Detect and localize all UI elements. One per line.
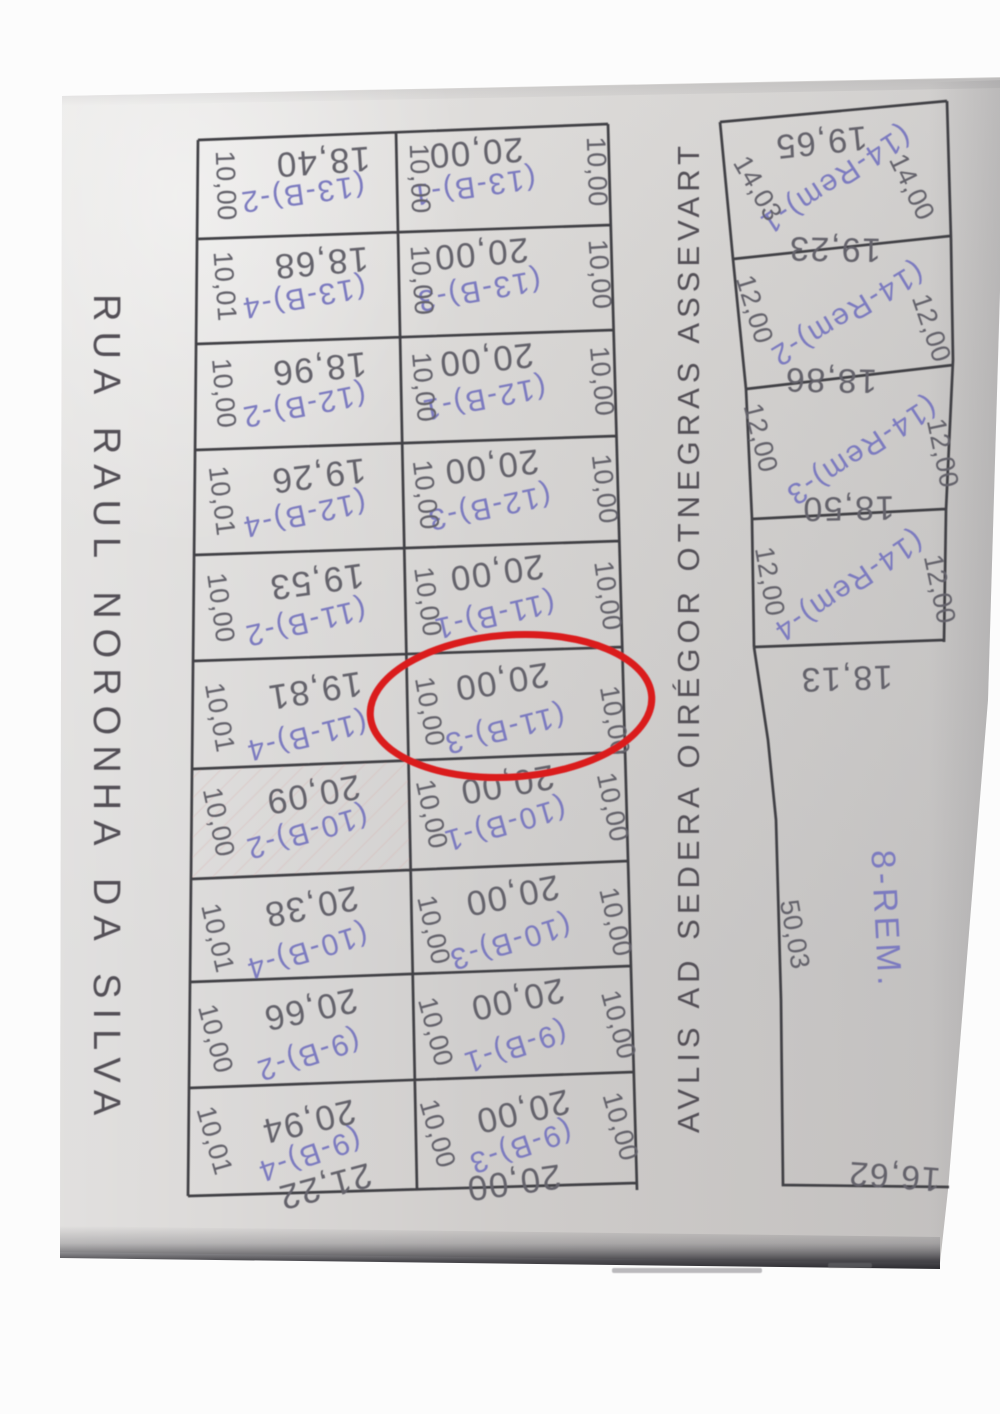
svg-text:18,50: 18,50	[802, 488, 895, 528]
svg-text:10,00: 10,00	[404, 143, 436, 214]
svg-text:10,00: 10,00	[584, 345, 620, 417]
svg-text:10,00: 10,00	[583, 238, 618, 310]
svg-text:8-REM.: 8-REM.	[863, 849, 908, 990]
svg-text:AVLIS AD SEDERA OIRÉGOR OTNEGR: AVLIS AD SEDERA OIRÉGOR OTNEGRAS ASSEVAR…	[671, 141, 706, 1133]
svg-text:18,86: 18,86	[784, 360, 877, 400]
svg-text:10,00: 10,00	[406, 351, 442, 423]
svg-text:RUA RAUL NORONHA DA SILVA: RUA RAUL NORONHA DA SILVA	[85, 294, 127, 1125]
svg-text:10,00: 10,00	[405, 244, 440, 316]
svg-text:19,23: 19,23	[788, 229, 881, 269]
svg-text:10,00: 10,00	[210, 150, 242, 221]
svg-text:16,62: 16,62	[847, 1154, 942, 1198]
svg-text:18,13: 18,13	[799, 657, 893, 698]
svg-text:10,01: 10,01	[208, 250, 243, 322]
svg-text:10,00: 10,00	[581, 136, 613, 207]
svg-text:10,00: 10,00	[206, 357, 242, 429]
